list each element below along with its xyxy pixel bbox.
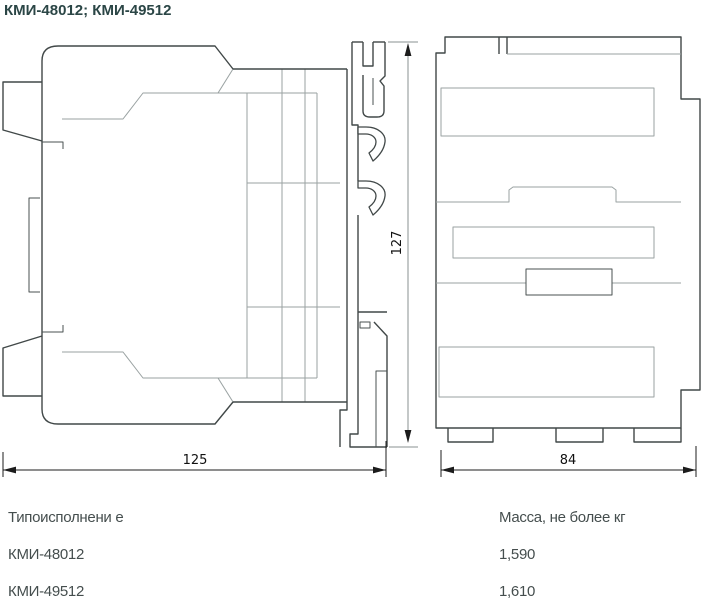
spec-header-mass: Масса, не более кг (499, 509, 625, 526)
dimension-annotations: 125 127 84 (3, 42, 696, 477)
dimension-label-127: 127 (390, 231, 405, 256)
spec-row-mass: 1,610 (499, 583, 535, 600)
side-view-drawing (3, 42, 387, 447)
spec-row-type: КМИ-48012 (8, 546, 84, 563)
front-view-drawing (436, 37, 700, 442)
spec-row-type: КМИ-49512 (8, 583, 84, 600)
datasheet-page: КМИ-48012; КМИ-49512 (0, 0, 705, 603)
dimension-label-84: 84 (560, 453, 577, 468)
dimension-label-125: 125 (183, 453, 208, 468)
spec-row-mass: 1,590 (499, 546, 535, 563)
spec-header-type: Типоисполнени е (8, 509, 123, 526)
